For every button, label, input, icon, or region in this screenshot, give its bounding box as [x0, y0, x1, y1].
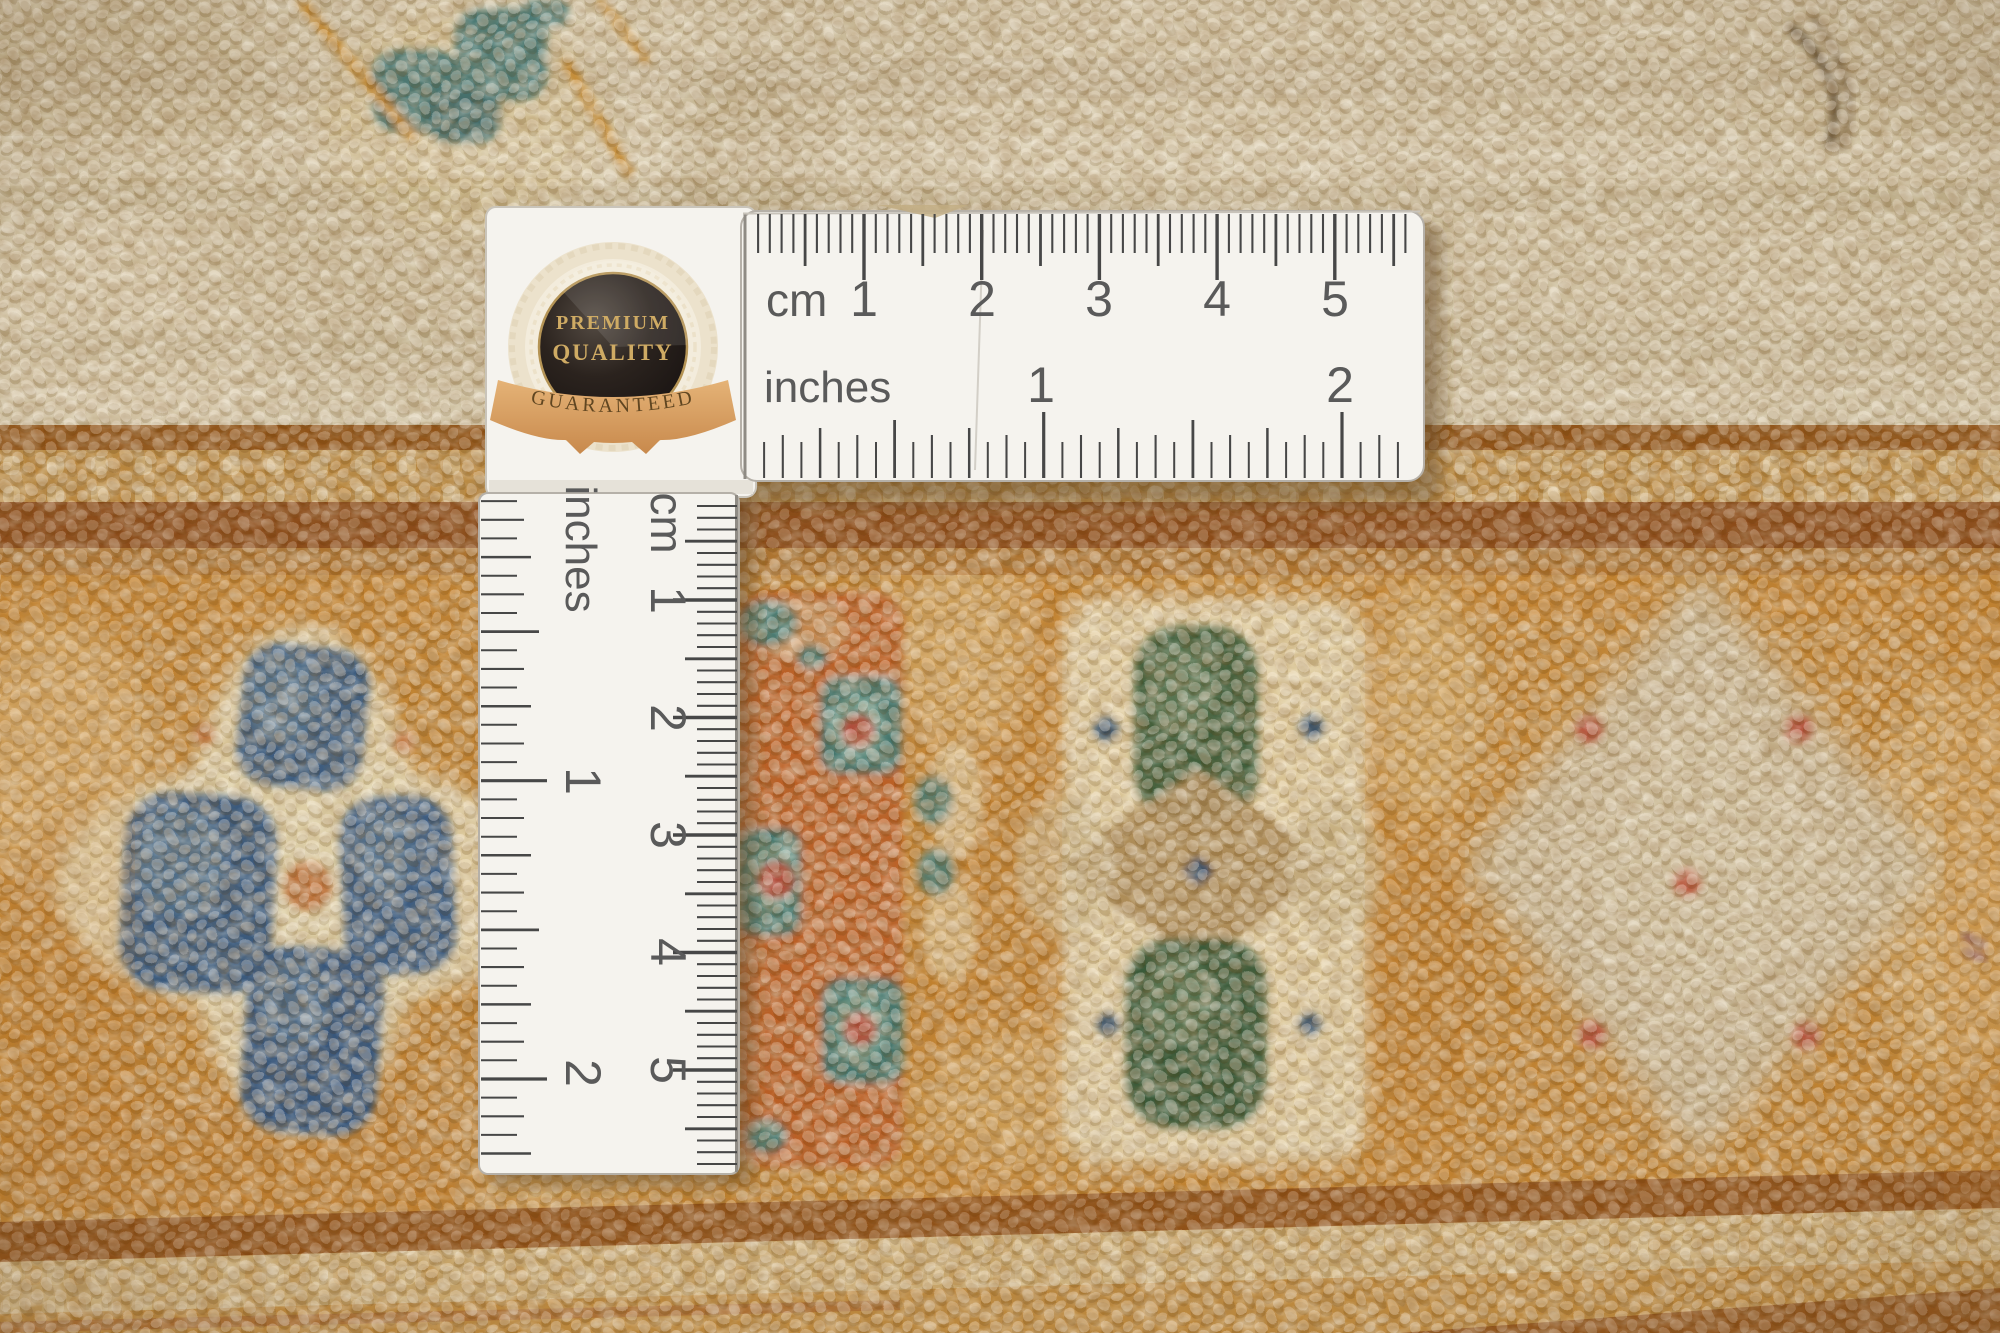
- svg-text:cm: cm: [641, 492, 693, 553]
- svg-text:2: 2: [1326, 357, 1354, 413]
- svg-text:4: 4: [1203, 271, 1231, 327]
- svg-text:5: 5: [640, 1056, 696, 1084]
- svg-text:PREMIUM: PREMIUM: [556, 312, 670, 334]
- svg-text:2: 2: [968, 271, 996, 327]
- svg-text:1: 1: [640, 586, 696, 614]
- svg-text:1: 1: [850, 271, 878, 327]
- svg-text:2: 2: [640, 704, 696, 732]
- svg-text:cm: cm: [766, 274, 827, 326]
- svg-text:1: 1: [555, 767, 611, 795]
- svg-text:1: 1: [1027, 357, 1055, 413]
- svg-text:2: 2: [555, 1059, 611, 1087]
- svg-text:QUALITY: QUALITY: [552, 340, 673, 365]
- svg-text:3: 3: [640, 821, 696, 849]
- svg-text:5: 5: [1321, 271, 1349, 327]
- svg-text:inches: inches: [556, 485, 605, 612]
- svg-text:4: 4: [640, 938, 696, 966]
- svg-text:inches: inches: [764, 363, 891, 412]
- svg-text:3: 3: [1085, 271, 1113, 327]
